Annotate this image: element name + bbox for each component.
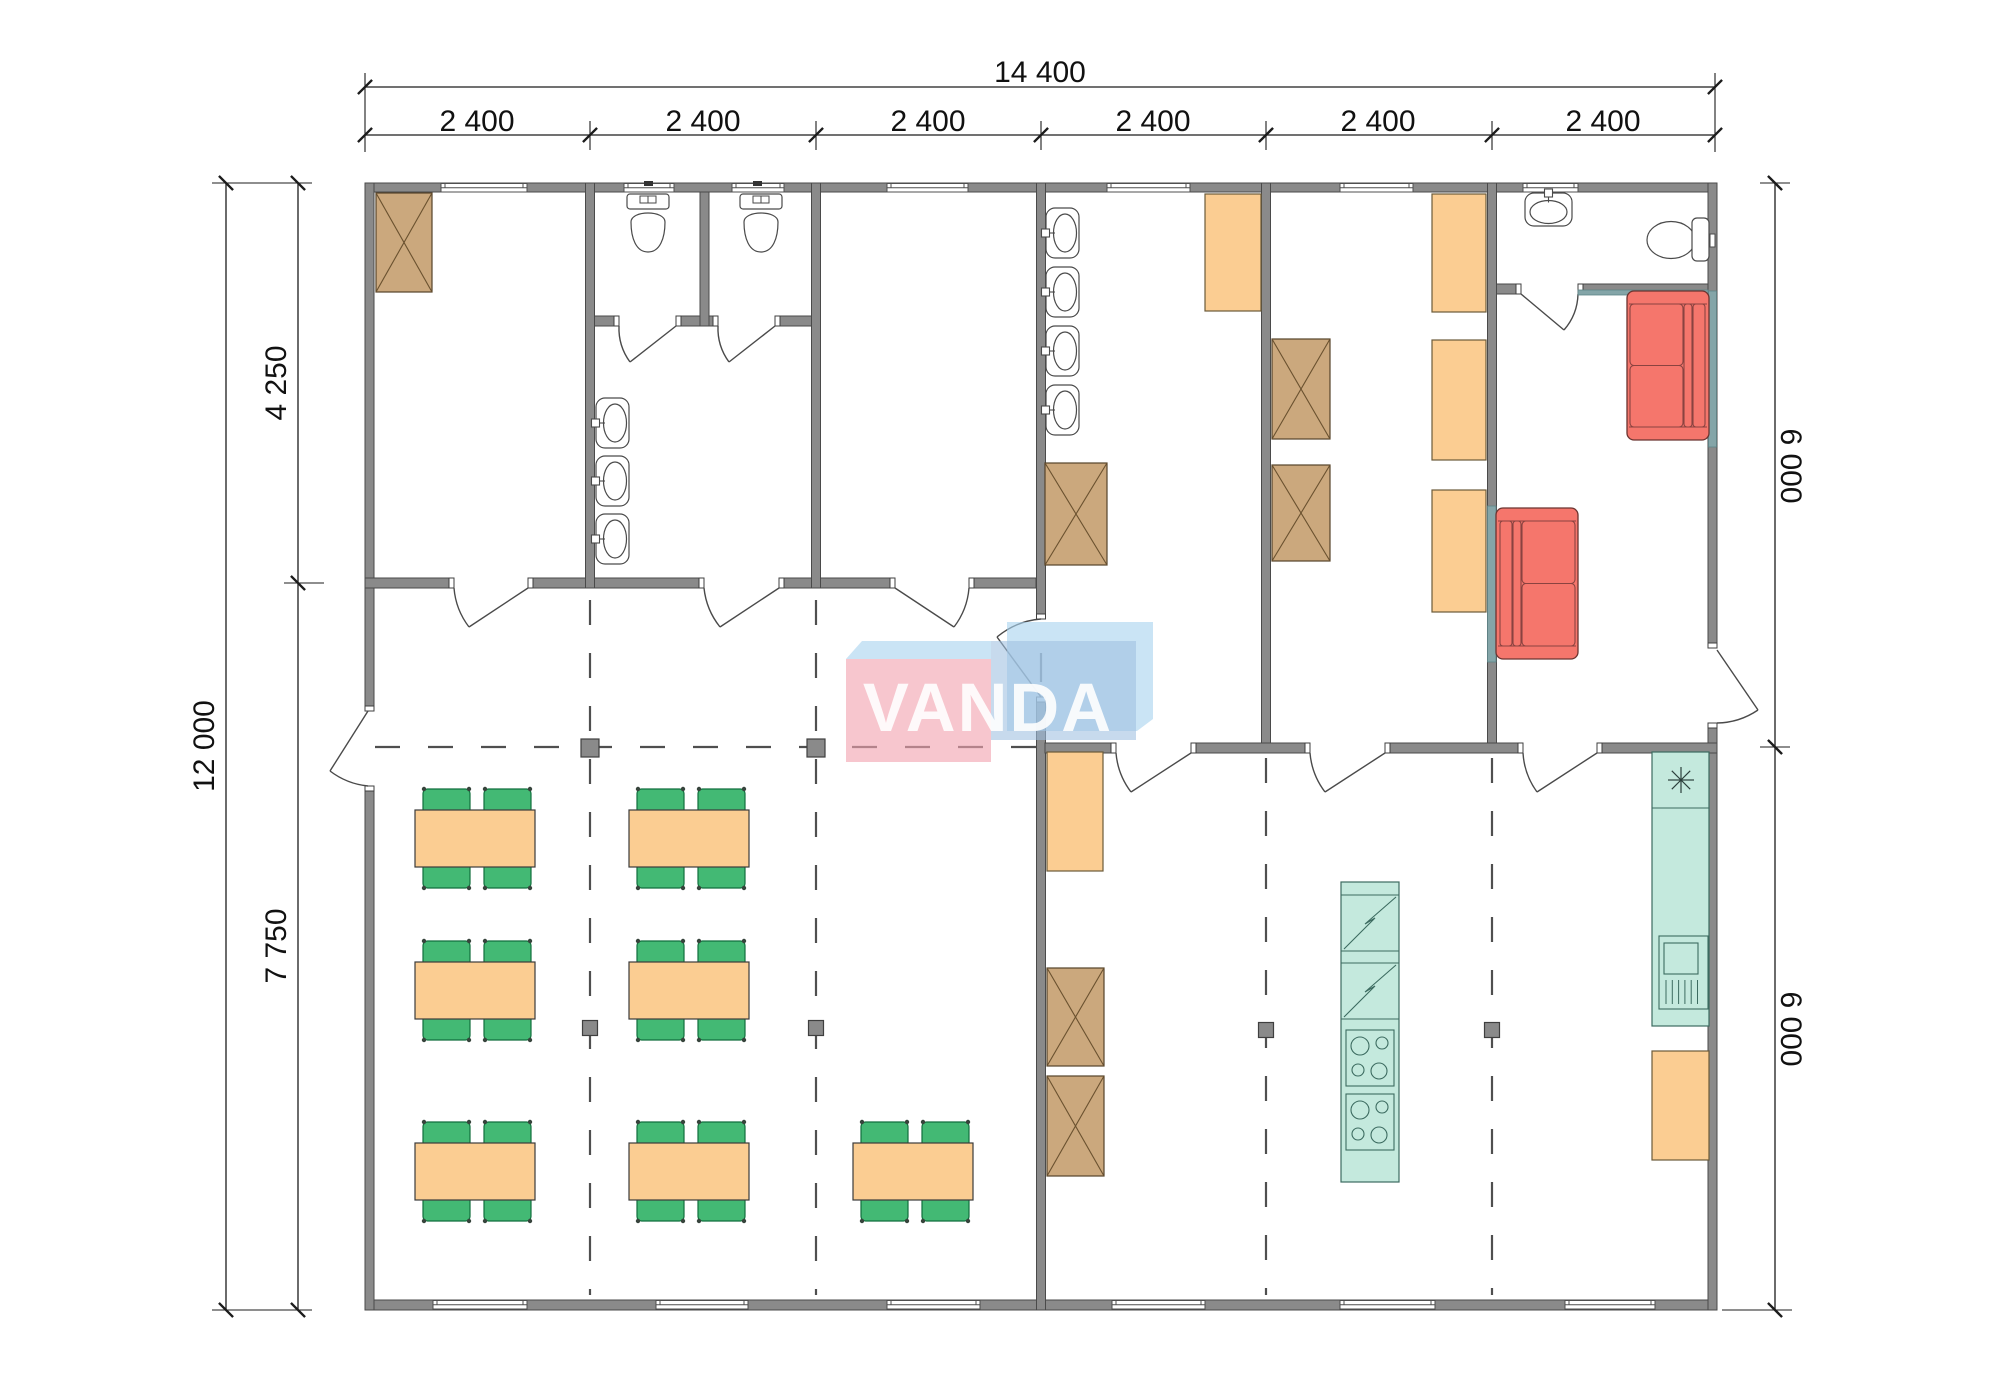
- svg-text:VANDA: VANDA: [863, 669, 1113, 746]
- svg-text:2 400: 2 400: [1565, 105, 1640, 138]
- svg-text:7 750: 7 750: [260, 908, 293, 983]
- svg-text:14 400: 14 400: [994, 56, 1086, 89]
- svg-text:2 400: 2 400: [1340, 105, 1415, 138]
- svg-text:6 000: 6 000: [1774, 991, 1807, 1066]
- svg-text:4 250: 4 250: [260, 345, 293, 420]
- svg-text:2 400: 2 400: [665, 105, 740, 138]
- svg-text:2 400: 2 400: [1115, 105, 1190, 138]
- svg-text:6 000: 6 000: [1774, 428, 1807, 503]
- svg-text:2 400: 2 400: [439, 105, 514, 138]
- svg-text:12 000: 12 000: [188, 700, 221, 792]
- svg-text:2 400: 2 400: [890, 105, 965, 138]
